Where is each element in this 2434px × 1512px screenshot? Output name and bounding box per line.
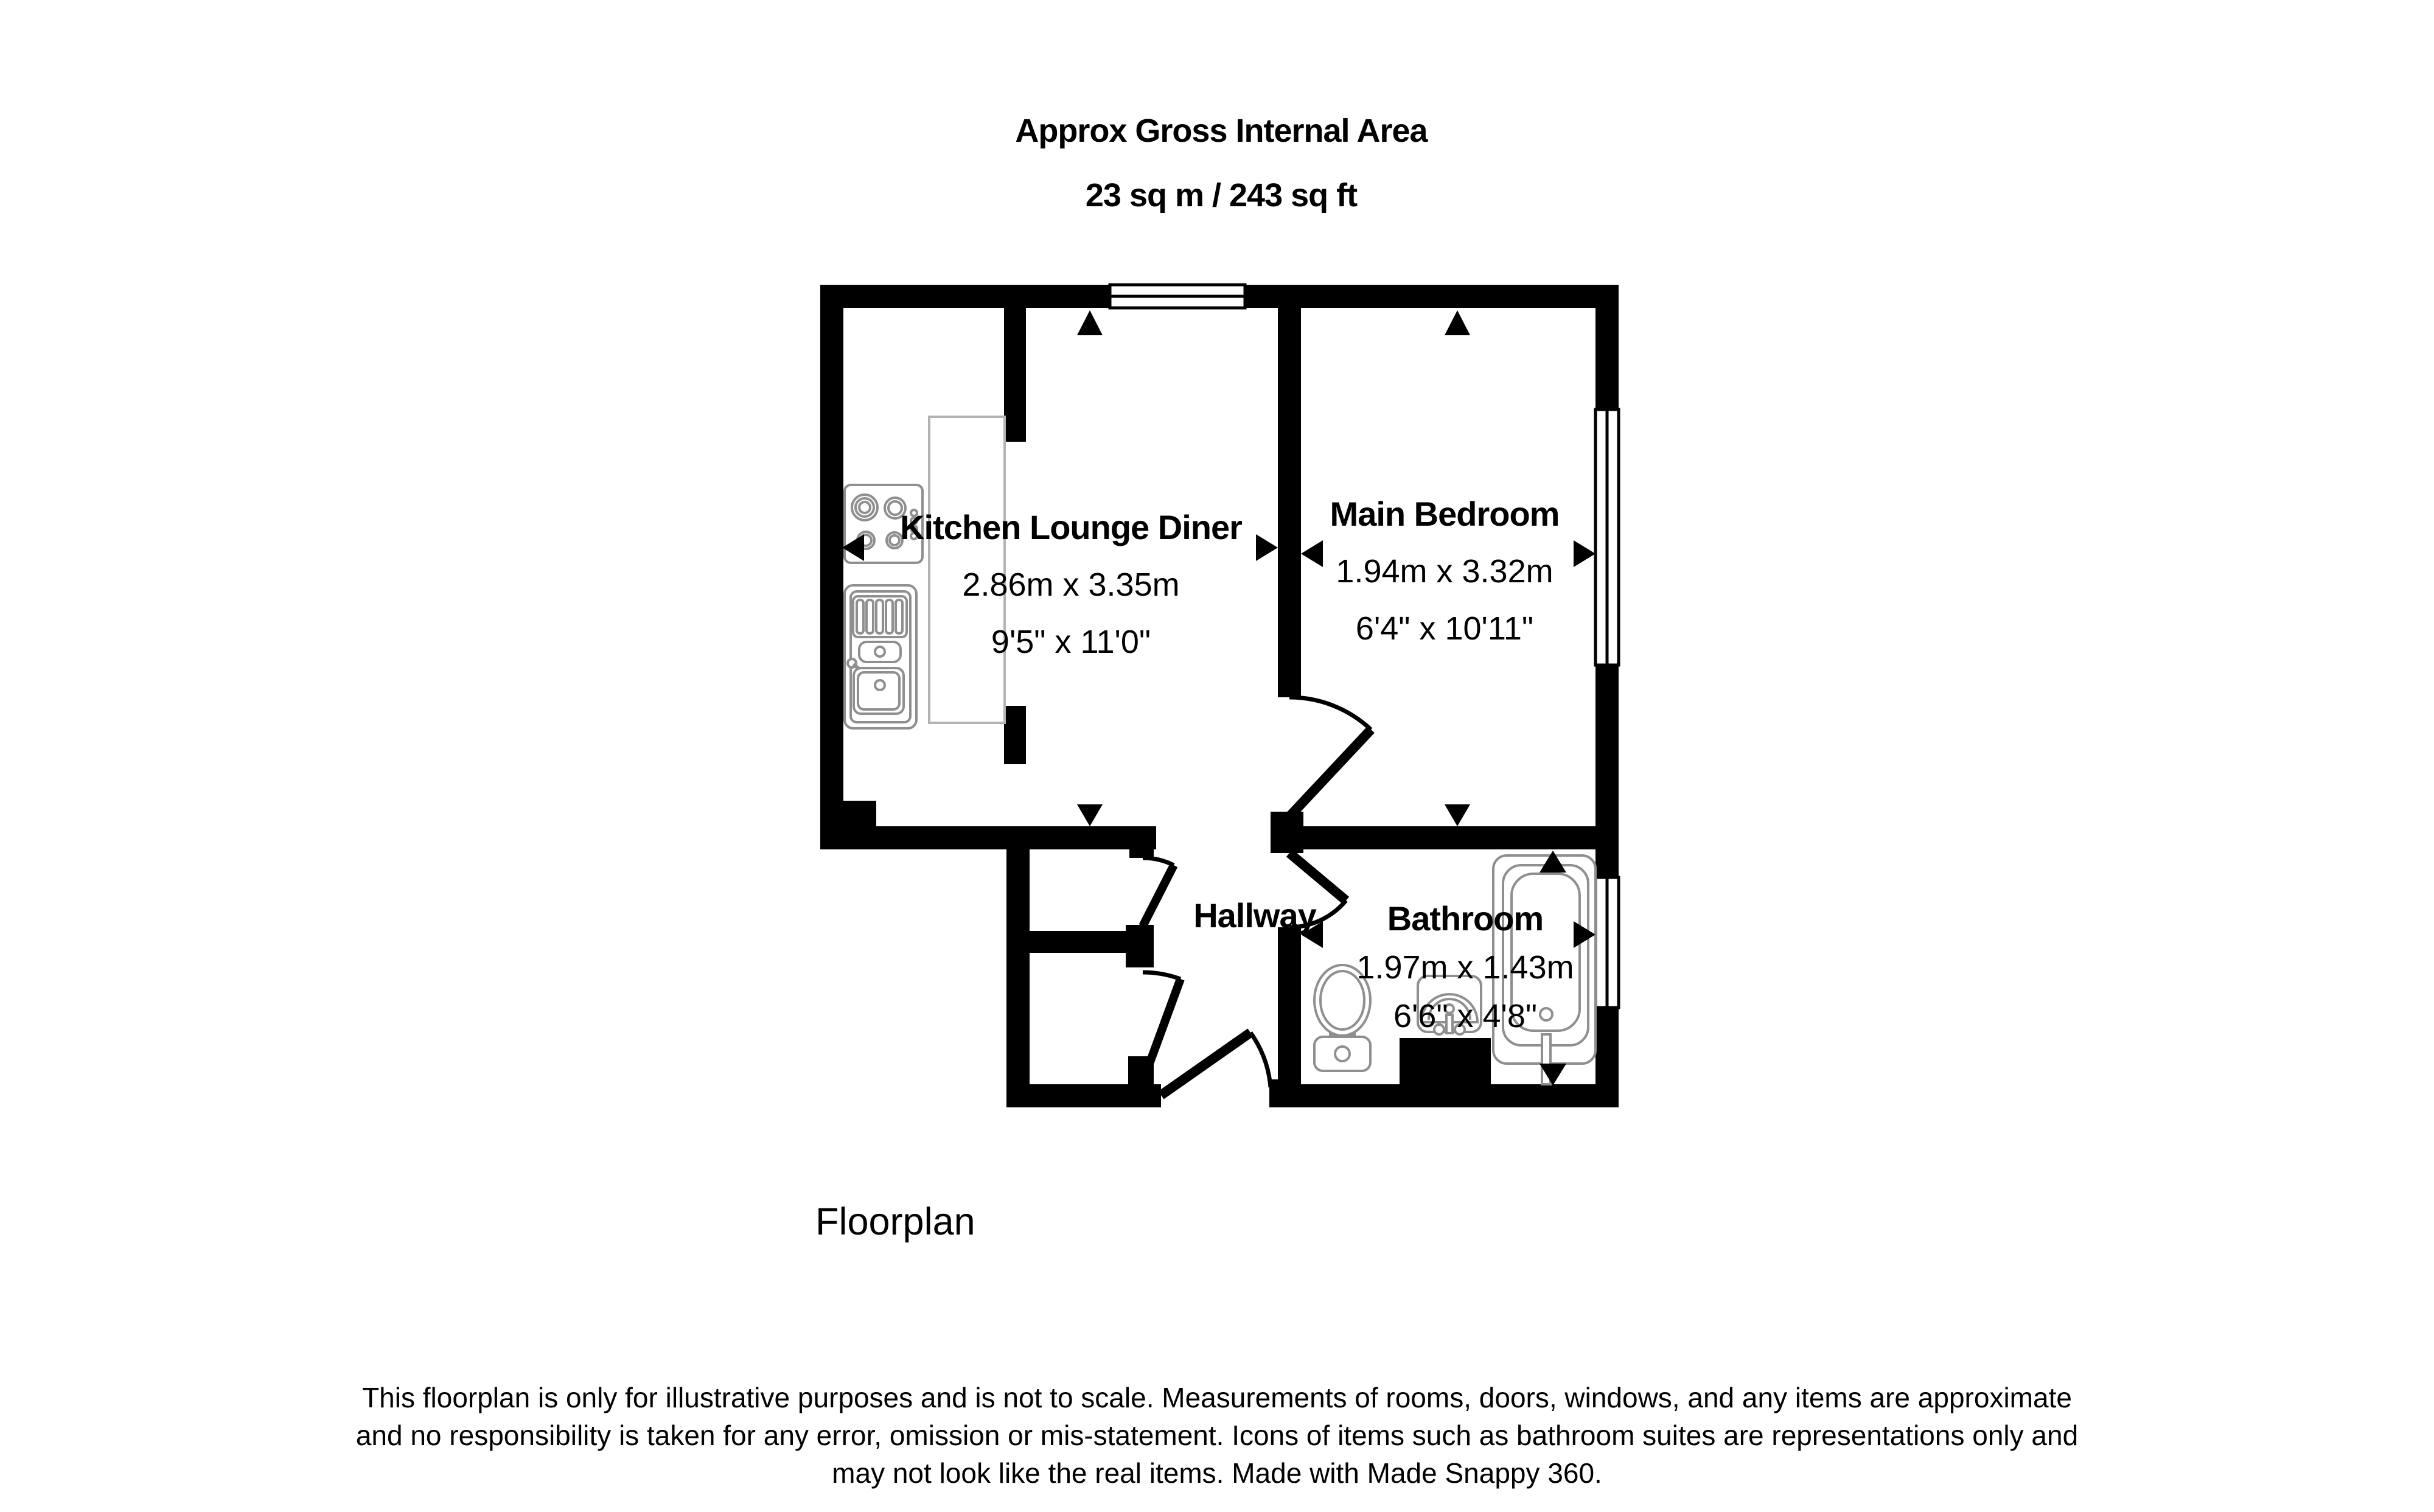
wall-left: [820, 285, 843, 849]
room-metric-kitchen: 2.86m x 3.35m: [900, 556, 1242, 613]
cupboard-door-top-icon: [1143, 858, 1174, 926]
wall-bath-left: [1278, 927, 1301, 1085]
wall-hall-bottom: [1006, 1084, 1161, 1107]
wall-hall-mid-stub-block: [1126, 925, 1154, 967]
room-imperial-bathroom: 6'6" x 4'8": [1356, 992, 1574, 1040]
wall-top-stub: [1004, 308, 1026, 442]
kitchen-window-icon: [1110, 285, 1245, 308]
measure-arrow-down-kitchen: [1077, 804, 1103, 826]
wall-hall-mid-stub: [1030, 931, 1127, 953]
bedroom-window-icon: [1595, 409, 1619, 665]
cupboard-door-bottom-icon: [1143, 972, 1180, 1082]
disclaimer-line-3: may not look like the real items. Made w…: [0, 1454, 2434, 1492]
measure-arrow-left-bedroom: [1301, 540, 1323, 567]
wall-bath-stub: [1400, 1038, 1491, 1085]
measure-arrow-down-bedroom: [1445, 804, 1470, 826]
wall-junction-block: [1271, 812, 1303, 853]
wall-bedroom-bottom: [1303, 826, 1595, 849]
measure-arrow-right-kitchen: [1256, 534, 1278, 561]
room-label-hallway: Hallway: [1193, 897, 1316, 934]
bedroom-door-swing-icon: [1289, 697, 1371, 817]
disclaimer-line-1: This floorplan is only for illustrative …: [0, 1379, 2434, 1416]
room-name-bedroom: Main Bedroom: [1330, 486, 1560, 543]
room-name-kitchen: Kitchen Lounge Diner: [900, 499, 1242, 556]
room-metric-bedroom: 1.94m x 3.32m: [1330, 543, 1560, 600]
floorplan-page: Approx Gross Internal Area 23 sq m / 243…: [0, 0, 2434, 1512]
room-label-bathroom: Bathroom 1.97m x 1.43m 6'6" x 4'8": [1356, 894, 1574, 1040]
wall-counter-block: [1004, 706, 1026, 764]
title-line-area: Approx Gross Internal Area: [1015, 99, 1427, 163]
floorplan-caption: Floorplan: [815, 1200, 975, 1244]
room-name-bathroom: Bathroom: [1356, 894, 1574, 943]
wall-kitchen-bottom: [820, 826, 1156, 849]
title-line-size: 23 sq m / 243 sq ft: [1015, 163, 1427, 228]
disclaimer: This floorplan is only for illustrative …: [0, 1379, 2434, 1492]
measure-arrow-up-kitchen: [1077, 310, 1103, 335]
page-title: Approx Gross Internal Area 23 sq m / 243…: [1015, 99, 1427, 228]
room-label-kitchen: Kitchen Lounge Diner 2.86m x 3.35m 9'5" …: [900, 499, 1242, 671]
room-metric-bathroom: 1.97m x 1.43m: [1356, 943, 1574, 992]
wall-bath-bottom: [1269, 1084, 1619, 1107]
room-imperial-bedroom: 6'4" x 10'11": [1330, 600, 1560, 657]
room-imperial-kitchen: 9'5" x 11'0": [900, 613, 1242, 671]
wall-hall-left: [1006, 849, 1030, 1107]
room-label-bedroom: Main Bedroom 1.94m x 3.32m 6'4" x 10'11": [1330, 486, 1560, 657]
bathroom-window-icon: [1595, 877, 1619, 1008]
measure-arrow-right-bedroom: [1574, 540, 1595, 567]
disclaimer-line-2: and no responsibility is taken for any e…: [0, 1416, 2434, 1454]
entrance-door-swing-icon: [1161, 1033, 1271, 1095]
wall-interior-kitchen-bedroom: [1278, 285, 1301, 697]
measure-arrow-up-bedroom: [1445, 310, 1470, 335]
